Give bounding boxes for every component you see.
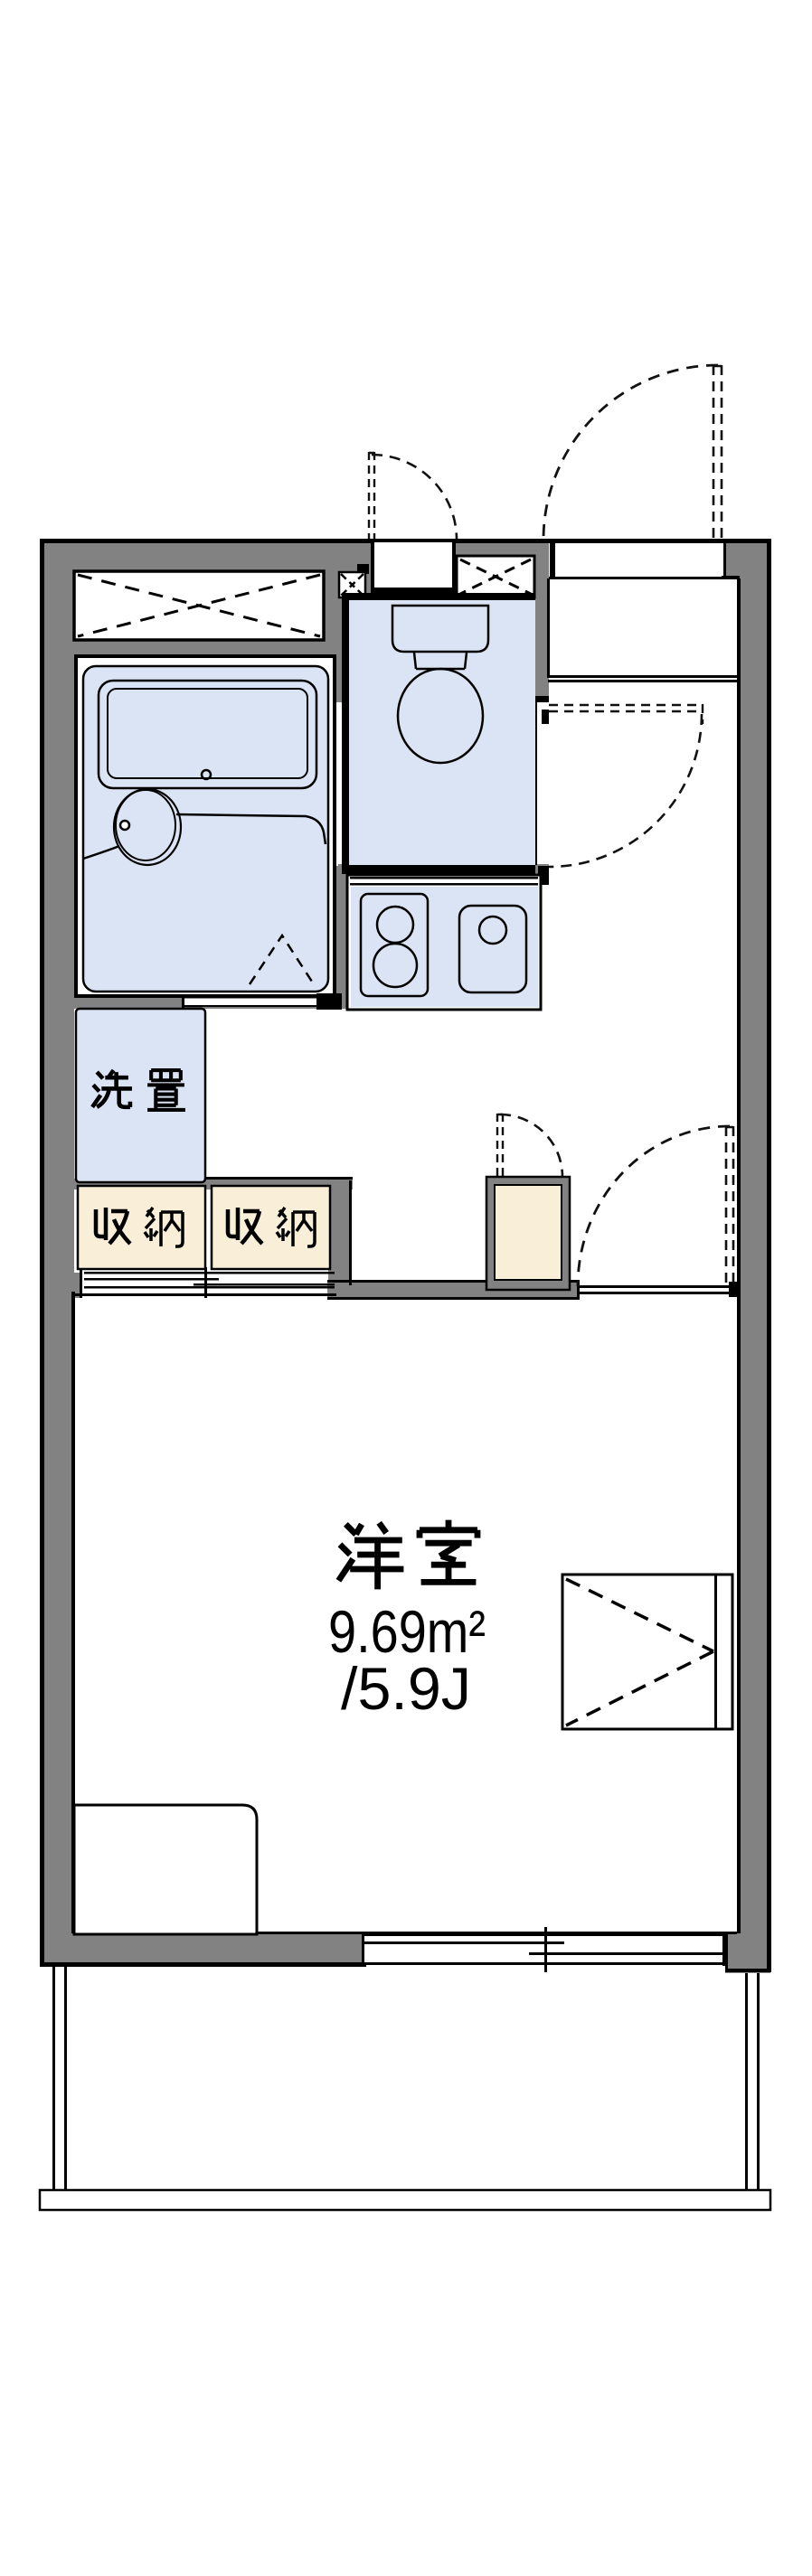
svg-text:/5.9J: /5.9J xyxy=(341,1655,471,1722)
